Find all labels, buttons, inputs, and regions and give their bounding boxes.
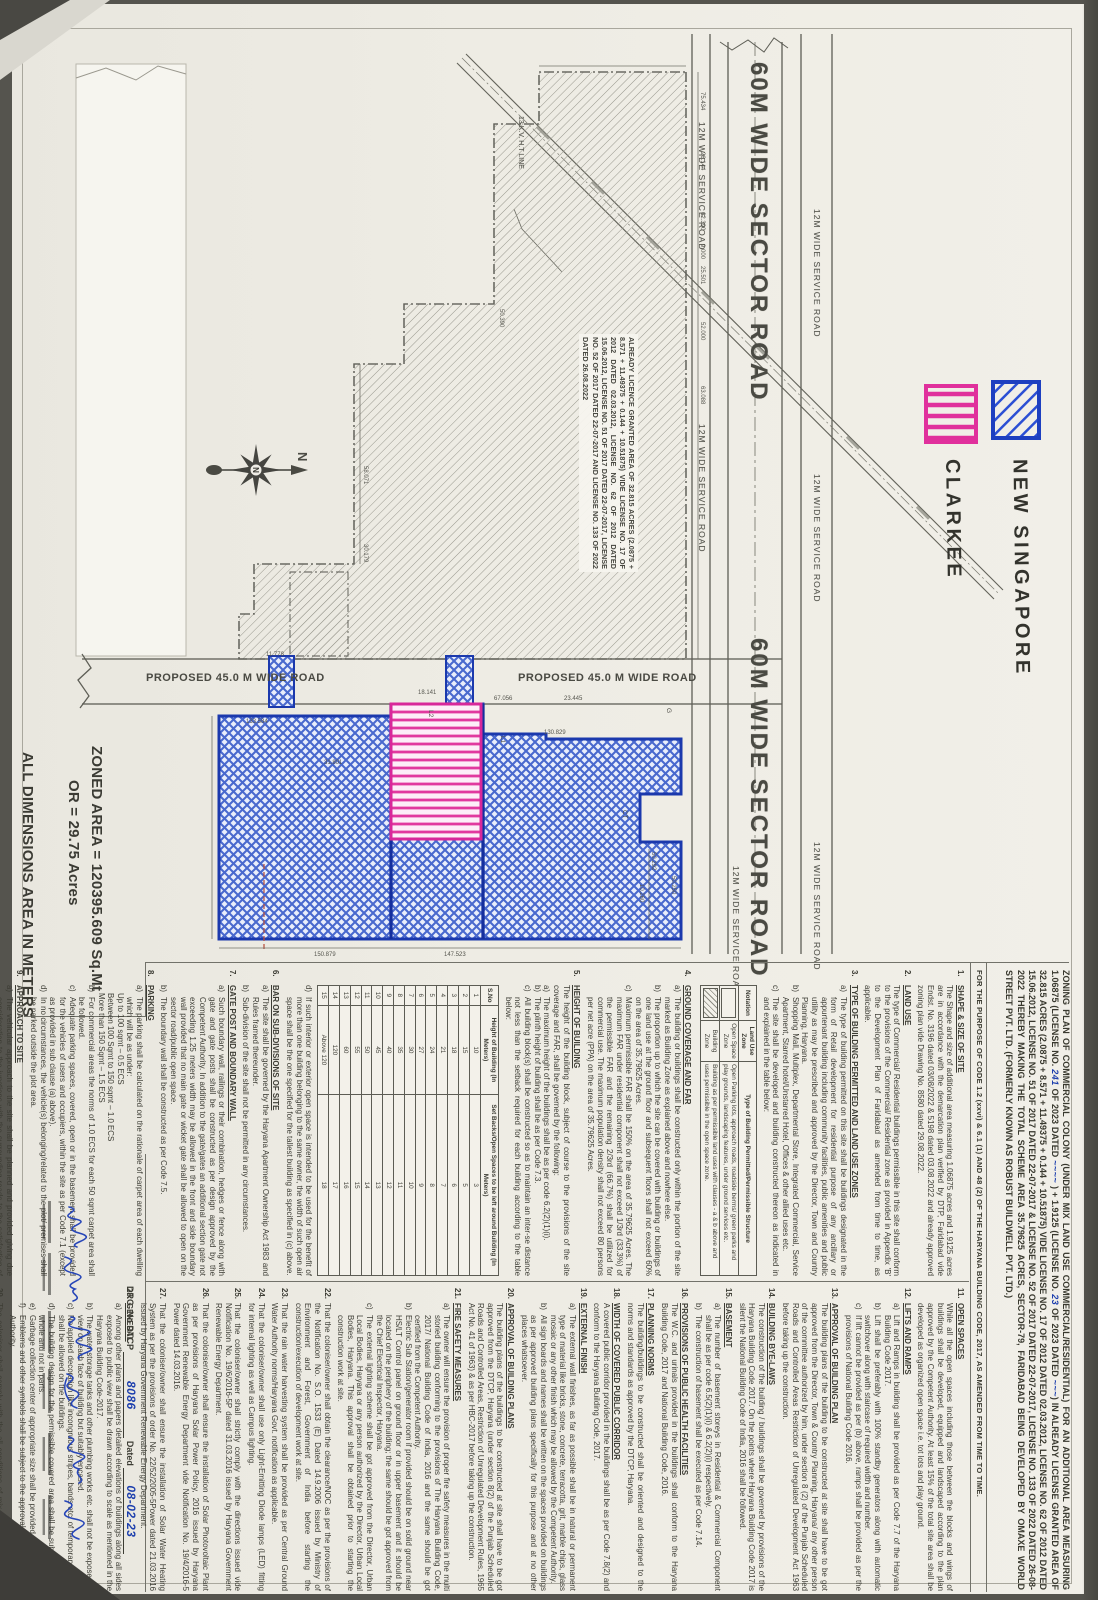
item-text: Sub-division of the site shall not be pe…: [241, 997, 251, 1232]
note-item: a)Such boundary wall, railings or their …: [168, 985, 226, 1276]
note-11: 11.OPEN SPACESWhile all the open spaces …: [916, 1288, 965, 1591]
item-text: All building block(s) shall be construct…: [503, 997, 532, 1276]
note-paragraph: That the coloniser/owner shall strictly …: [214, 1303, 243, 1591]
notes-divider-main: [146, 962, 1069, 963]
note-number: 15.: [693, 1288, 733, 1303]
table-row: Building ZoneBuilding as per permissible…: [701, 986, 720, 1276]
item-key: a): [542, 985, 552, 997]
item-key: d): [284, 985, 313, 997]
note-number: 26.: [171, 1288, 210, 1303]
note-14: 14.BUILDING BYE-LAWSThe construction of …: [737, 1288, 777, 1591]
purpose-line: FOR THE PURPOSE OF CODE 1.2 (xxvi) & 6.1…: [975, 970, 984, 1590]
note-body: BUILDING BYE-LAWSThe construction of the…: [737, 1303, 777, 1591]
note-heading: LIFTS AND RAMPS: [902, 1303, 912, 1591]
proposed-road-label-2: PROPOSED 45.0 M WIDE ROAD: [518, 672, 697, 684]
note-item: a)Lift and Ramps in building shall be pr…: [882, 1303, 901, 1591]
item-text: If such interior or exterior open space …: [284, 997, 313, 1276]
plan-sheet: N 60M WIDE SECTOR ROAD 60M WIDE SECTOR R…: [12, 4, 1084, 1594]
note-12: 12.LIFTS AND RAMPSa)Lift and Ramps in bu…: [843, 1288, 911, 1591]
item-text: The site shall be governed by the Haryan…: [250, 997, 269, 1276]
table-cell: 7: [437, 1095, 448, 1276]
note-17: 17.PLANNING NORMSThe building/buildings …: [626, 1288, 656, 1591]
note-paragraph: The building plans of the building to be…: [780, 1303, 828, 1591]
item-key: b): [241, 985, 251, 997]
table-cell: 12: [383, 1095, 394, 1276]
note-paragraph: That the rain water harvesting system sh…: [270, 1303, 289, 1591]
note-item: a)The maximum height of the buildings sh…: [542, 985, 552, 1276]
note-6: 6.BAR ON SUB-DIVISIONS OF SITEa)The site…: [241, 970, 281, 1276]
table-cell: 15: [318, 986, 329, 1006]
table-cell: 13: [339, 986, 350, 1006]
road-break-symbol: [720, 38, 788, 52]
item-text: The parking shall be calculated on the r…: [125, 997, 144, 1276]
plot-label-G: G: [665, 708, 672, 713]
table-row: 1412017: [329, 986, 340, 1276]
note-item: b)Shopping Mall, Multiplex, Departmental…: [780, 985, 799, 1276]
dim-label: 26.144: [699, 152, 705, 170]
note-heading: BASEMENT: [723, 1303, 733, 1591]
note-paragraph: The building plans of the buildings to b…: [466, 1303, 505, 1591]
item-key: a): [250, 985, 269, 997]
note-paragraph: That the coloniser/owner shall ensure th…: [138, 1303, 167, 1591]
note-20: 20.APPROVAL OF BUILDING PLANSThe buildin…: [466, 1288, 515, 1591]
blank-paper-band: [76, 64, 186, 656]
dim-label: 10.260: [638, 884, 644, 902]
setback-table: S.NoHeight of Building (In Meters)Set Ba…: [317, 985, 499, 1276]
table-cell: 30: [404, 1005, 415, 1095]
dim-label: 58.071: [362, 466, 368, 484]
table-row: 3186: [448, 986, 459, 1276]
note-number: 4.: [585, 970, 692, 985]
note-heading: FIRE SAFETY MEASURES: [452, 1303, 462, 1591]
plot-label-L1: L1: [499, 736, 506, 743]
svg-text:N: N: [251, 467, 260, 473]
note-paragraph: A covered public corridor provided in th…: [592, 1303, 611, 1591]
note-body: BAR ON SUB-DIVISIONS OF SITEa)The site s…: [241, 985, 281, 1276]
proposed-road-label-1: PROPOSED 45.0 M WIDE ROAD: [146, 672, 325, 684]
table-cell: 10: [372, 986, 383, 1006]
note-paragraph: While all the open spaces including thos…: [916, 1303, 955, 1591]
photo-edge-right: [1082, 0, 1098, 1600]
notation-cell: [701, 986, 720, 1021]
dim-label: 52.000: [699, 322, 705, 340]
note-7: 7.GATE POST AND BOUNDARY WALLa)Such boun…: [159, 970, 237, 1276]
note-heading: HEIGHT OF BUILDING: [572, 985, 582, 1276]
note-2: 2.LAND USEThe type of Commercial/ Reside…: [863, 970, 912, 1276]
note-item: a)The site shall be governed by the Hary…: [250, 985, 269, 1276]
licensed-area-text: ALREADY LICENCE GRANTED AREA OF 32.815 A…: [579, 334, 638, 572]
zone-road-crossing-1: [446, 656, 473, 707]
drg-number-handwritten: 8086: [123, 1352, 138, 1438]
note-1: 1.SHAPE & SIZE OF SITEThe Shape and size…: [916, 970, 965, 1276]
dim-label: 25.501: [699, 266, 705, 284]
item-text: The construction of basement shall be ex…: [693, 1315, 703, 1547]
table-cell: 16: [339, 1095, 350, 1276]
item-key: a): [882, 1303, 901, 1315]
table-cell: 35: [394, 1005, 405, 1095]
item-text: The site shall be developed and building…: [761, 997, 780, 1276]
note-item: a)The building or buildings shall be con…: [662, 985, 681, 1276]
service-road-label-2: 12M WIDE SERVICE ROAD: [812, 474, 822, 603]
dim-label: 18.141: [418, 690, 436, 696]
item-key: b): [780, 985, 799, 997]
note-number: 16.: [659, 1288, 689, 1303]
item-key: b): [633, 985, 662, 997]
note-body: EXTERNAL FINISHa)The external wall finis…: [519, 1303, 587, 1591]
table-row: 2155: [458, 986, 469, 1276]
notes-column-right: 11.OPEN SPACESWhile all the open spaces …: [0, 1288, 965, 1591]
note-number: 17.: [626, 1288, 656, 1303]
handwritten-entry: 241: [1050, 1069, 1060, 1086]
item-text: If lift cannot be provided as per (b) ab…: [843, 1315, 862, 1591]
item-key: a): [800, 985, 848, 997]
purpose-rule: [970, 962, 971, 1592]
note-item: b)Lift shall be preferably with 100% sta…: [863, 1303, 882, 1591]
table-cell: 17: [329, 1095, 340, 1276]
note-number: 3.: [696, 970, 858, 985]
note-body: SHAPE & SIZE OF SITEThe Shape and size o…: [916, 985, 965, 1276]
note-body: PROVISIONS OF PUBLIC HEALTH FACILITIESTh…: [659, 1303, 689, 1591]
note-heading: PROVISIONS OF PUBLIC HEALTH FACILITIES: [680, 1303, 690, 1591]
note-body: PLANNING NORMSThe building/buildings to …: [626, 1303, 656, 1591]
note-number: 19.: [519, 1288, 587, 1303]
zoned-area-line2: OR = 29.75 Acres: [62, 746, 85, 991]
note-item: b)Sub-division of the site shall not be …: [241, 985, 251, 1276]
note-body: That the coloniser/owner shall strictly …: [214, 1303, 243, 1591]
note-number: 20.: [466, 1288, 515, 1303]
table-cell: 12: [350, 986, 361, 1006]
note-heading: PARKING: [145, 985, 155, 1276]
note-heading: SHAPE & SIZE OF SITE: [955, 985, 965, 1276]
table-cell: 15: [458, 1005, 469, 1095]
note-heading: EXTERNAL FINISH: [578, 1303, 588, 1591]
item-key: b): [519, 1303, 548, 1315]
note-number: 7.: [159, 970, 237, 985]
item-key: a): [662, 985, 681, 997]
note-item: b)All sign boards and names shall be wri…: [519, 1303, 548, 1591]
note-heading: OPEN SPACES: [955, 1303, 965, 1591]
table-cell: 40: [383, 1005, 394, 1095]
note-number: 6.: [241, 970, 281, 985]
zone-cell: Open Space Zone: [719, 1021, 738, 1062]
dim-label: 9.000: [699, 244, 705, 259]
note-item: a)The type of building permitted on this…: [800, 985, 848, 1276]
table-row: 4217: [437, 986, 448, 1276]
table-cell: 8: [426, 1095, 437, 1276]
note-paragraph: That the coloniser/owner shall ensure th…: [171, 1303, 210, 1591]
item-key: a): [548, 1303, 577, 1315]
table-cell: 14: [361, 1095, 372, 1276]
note-23: 23.That the rain water harvesting system…: [270, 1288, 289, 1591]
note-number: 5.: [284, 970, 581, 985]
table-row: 94012: [383, 986, 394, 1276]
item-key: a): [0, 985, 14, 997]
item-text: All sign boards and names shall be writt…: [519, 1315, 548, 1591]
table-row: 125515: [350, 986, 361, 1276]
note-item: b)Electric Sub Station/generator room if…: [374, 1303, 413, 1591]
note-heading: GATE POST AND BOUNDARY WALL: [227, 985, 237, 1276]
dim-label: 31.801: [324, 760, 342, 766]
note-number: 13.: [780, 1288, 839, 1303]
note-16: 16.PROVISIONS OF PUBLIC HEALTH FACILITIE…: [659, 1288, 689, 1591]
desc-cell: Building as per permissible land uses wi…: [701, 1062, 720, 1276]
note-number: 27.: [138, 1288, 167, 1303]
item-text: Lift and Ramps in building shall be prov…: [882, 1315, 901, 1591]
table-header: Notation: [738, 986, 757, 1021]
table-cell: 11: [394, 1095, 405, 1276]
dim-label: 133.584: [246, 719, 268, 725]
note-item: d)If such interior or exterior open spac…: [284, 985, 313, 1276]
dim-label: 130.829: [544, 730, 566, 736]
note-heading: BAR ON SUB-DIVISIONS OF SITE: [271, 985, 281, 1276]
table-row: 5248: [426, 986, 437, 1276]
note-number: 12.: [843, 1288, 911, 1303]
note-paragraph: The type of Commercial/ Residential buil…: [863, 985, 902, 1276]
north-compass: N: [206, 444, 308, 496]
note-number: 24.: [246, 1288, 265, 1303]
item-key: a): [168, 985, 226, 997]
zoned-area-line1: ZONED AREA = 120395.609 Sq.Mt: [85, 746, 108, 991]
licensed-area-small-plot: [290, 572, 348, 656]
note-item: b)The proportion up to which the site ca…: [633, 985, 662, 1276]
item-text: Lift shall be preferably with 100% stand…: [863, 1315, 882, 1591]
note-21: 21.FIRE SAFETY MEASURESa)The owner will …: [336, 1288, 462, 1591]
dim-label: 75.434: [699, 92, 705, 110]
note-paragraph: The height of the building block, subjec…: [551, 985, 570, 1276]
notes-column-left: 1.SHAPE & SIZE OF SITEThe Shape and size…: [0, 970, 965, 1276]
note-number: 21.: [336, 1288, 462, 1303]
table-row: 15Above 12018: [318, 986, 329, 1276]
item-text: Maximum permissible FAR shall be 150% on…: [585, 997, 633, 1276]
note-4: 4.GROUND COVERAGE AND FARa)The building …: [585, 970, 692, 1276]
plot-label-L2: L2: [427, 710, 434, 717]
table-row: 6279: [415, 986, 426, 1276]
table-cell: Above 120: [318, 1005, 329, 1095]
north-label: N: [295, 452, 310, 461]
service-road-label-1: 12M WIDE SERVICE ROAD: [812, 209, 822, 338]
table-cell: 45: [372, 1005, 383, 1095]
note-27: 27.That the coloniser/owner shall ensure…: [138, 1288, 167, 1591]
subline: Up to 100 sqmt – 0.5 ECS: [115, 993, 125, 1276]
open-swatch: [721, 988, 736, 1018]
generated: NotationLand Use ZoneType of Building Pe…: [738, 986, 757, 1276]
ht-line-label: 13 K.V. H.T LINE: [517, 116, 524, 169]
note-body: GATE POST AND BOUNDARY WALLa)Such bounda…: [159, 985, 237, 1276]
table-cell: 5: [426, 986, 437, 1006]
hatch-swatch: [703, 988, 718, 1018]
note-paragraph: That the coloniser/owner shall use only …: [246, 1303, 265, 1591]
item-key: b): [77, 985, 96, 997]
table-cell: 21: [437, 1005, 448, 1095]
sector-road-label-1: 60M WIDE SECTOR ROAD: [744, 62, 772, 402]
title-text: ) + 1.9125 (LICENSE NO.: [1050, 1183, 1060, 1294]
note-heading: WIDTH OF COVERED PUBLIC CORRIDOR: [612, 1303, 622, 1591]
table-cell: 11: [361, 986, 372, 1006]
table-cell: 6: [415, 986, 426, 1006]
table-header: Set Backs/Open Spaces to be left around …: [480, 1095, 499, 1276]
item-key: c): [843, 1303, 862, 1315]
note-26: 26.That the coloniser/owner shall ensure…: [171, 1288, 210, 1591]
note-body: TYPE OF BUILDING PERMITTED AND LAND USE …: [696, 985, 858, 1276]
table-cell: 7: [404, 986, 415, 1006]
note-5: 5.HEIGHT OF BUILDINGThe height of the bu…: [284, 970, 581, 1276]
item-text: The proportion up to which the site can …: [633, 997, 662, 1276]
item-key: a): [703, 1303, 722, 1315]
note-body: OPEN SPACESWhile all the open spaces inc…: [916, 1303, 965, 1591]
desc-cell: Open Parking lots, approach roads, roads…: [719, 1062, 738, 1276]
item-key: d): [28, 985, 47, 997]
note-body: APPROVAL OF BUILDING PLANThe building pl…: [780, 1303, 839, 1591]
item-key: b): [693, 1303, 703, 1315]
dim-label: 150.879: [314, 952, 336, 958]
table-row: 1103: [469, 986, 480, 1276]
note-body: WIDTH OF COVERED PUBLIC CORRIDORA covere…: [592, 1303, 622, 1591]
note-number: 23.: [270, 1288, 289, 1303]
table-row: 104513: [372, 986, 383, 1276]
zoned-area-note: ZONED AREA = 120395.609 Sq.Mt OR = 29.75…: [62, 746, 109, 991]
note-paragraph: The construction of the building / build…: [737, 1303, 766, 1591]
dim-label: 50.292: [650, 852, 656, 870]
drawing-number-line: DRG. No DTCP 8086 Dated 08-02-23: [123, 1286, 138, 1554]
plot-label-CT: CT: [621, 810, 628, 819]
handwritten-entry: 23: [1050, 1294, 1060, 1305]
item-text: Electric Sub Station/generator room if p…: [374, 1315, 413, 1591]
note-body: APPROVAL OF BUILDING PLANSThe building p…: [466, 1303, 515, 1591]
legend-label-new-singapore: NEW SINGAPORE: [1007, 459, 1033, 677]
item-text: Such boundary wall, railings or their co…: [168, 997, 226, 1276]
dim-label: 50.250: [670, 876, 676, 894]
title-text: OF 2023 DATED: [1050, 1305, 1060, 1379]
note-body: That the coloniser/owner shall use only …: [246, 1303, 265, 1591]
table-row: Open Space ZoneOpen Parking lots, approa…: [719, 986, 738, 1276]
dim-label: 67.056: [494, 696, 512, 702]
notation-cell: [719, 986, 738, 1021]
item-key: a): [413, 1303, 452, 1315]
note-heading: APPROVAL OF BUILDING PLAN: [830, 1303, 840, 1591]
item-text: The building or buildings shall be const…: [662, 997, 681, 1276]
dated-label: Dated: [125, 1441, 135, 1466]
note-item: a)The owner will ensure the provision of…: [413, 1303, 452, 1591]
dim-label: 23.445: [564, 696, 582, 702]
table-cell: 5: [458, 1095, 469, 1276]
table-cell: 15: [350, 1095, 361, 1276]
note-item: a)The parking shall be calculated on the…: [125, 985, 144, 1276]
table-cell: 1: [469, 986, 480, 1006]
note-body: That the rain water harvesting system sh…: [270, 1303, 289, 1591]
note-13: 13.APPROVAL OF BUILDING PLANThe building…: [780, 1288, 839, 1591]
item-text: The type of building permitted on this s…: [800, 997, 848, 1276]
note-item: c)The external lighting scheme shall be …: [336, 1303, 375, 1591]
pink-zone-rect: [391, 704, 481, 839]
note-body: GROUND COVERAGE AND FARa)The building or…: [585, 985, 692, 1276]
note-item: b)The plinth height of building shall be…: [532, 985, 542, 1276]
note-heading: PLANNING NORMS: [646, 1303, 656, 1591]
note-22: 22.That the coloniser/owner shall obtain…: [293, 1288, 332, 1591]
table-cell: 3: [469, 1095, 480, 1276]
table-cell: 50: [361, 1005, 372, 1095]
note-number: 14.: [737, 1288, 777, 1303]
note-body: BASEMENTa)The number of basement storeys…: [693, 1303, 733, 1591]
note-body: LAND USEThe type of Commercial/ Resident…: [863, 985, 912, 1276]
item-key: c): [503, 985, 532, 997]
plan-title-paragraph: ZONING PLAN OF COMMERCIAL COLONY (UNDER …: [1003, 970, 1071, 1590]
scanned-zoning-plan-photo: { "legend": { "items": [ {"label": "NEW …: [0, 0, 1098, 1600]
note-body: That the coloniser/owner shall ensure th…: [171, 1303, 210, 1591]
note-body: HEIGHT OF BUILDINGThe height of the buil…: [284, 985, 581, 1276]
item-key: b): [159, 985, 169, 997]
note-item: a)The number of basement storeys in Resi…: [703, 1303, 722, 1591]
note-body: LIFTS AND RAMPSa)Lift and Ramps in build…: [843, 1303, 911, 1591]
legend-swatch-clarkee: [926, 386, 976, 442]
handwritten-entry: ~~~: [1050, 1380, 1060, 1397]
table-cell: 8: [394, 986, 405, 1006]
dim-label: 50.390: [498, 309, 504, 327]
note-number: 25.: [214, 1288, 243, 1303]
note-item: b)The construction of basement shall be …: [693, 1303, 703, 1591]
item-key: a): [125, 985, 144, 997]
table-cell: 4: [437, 986, 448, 1006]
note-paragraph: The building/buildings to be constructed…: [626, 1303, 645, 1591]
note-24: 24.That the coloniser/owner shall use on…: [246, 1288, 265, 1591]
note-number: 1.: [916, 970, 965, 985]
item-text: The external lighting scheme shall be go…: [336, 1315, 375, 1591]
table-cell: 6: [448, 1095, 459, 1276]
table-cell: 60: [339, 1005, 350, 1095]
note-25: 25.That the coloniser/owner shall strict…: [214, 1288, 243, 1591]
legend-label-clarkee: CLARKEE: [940, 459, 965, 580]
header-rule: [986, 962, 987, 1592]
table-row: 115014: [361, 986, 372, 1276]
item-text: The plinth height of building shall be a…: [532, 997, 542, 1183]
table-cell: 27: [415, 1005, 426, 1095]
title-text: OF 2023 DATED: [1050, 1086, 1060, 1160]
note-paragraph: That the coloniser/owner shall obtain th…: [293, 1303, 332, 1591]
note-number: 11.: [916, 1288, 965, 1303]
item-text: The owner will ensure the provision of p…: [413, 1315, 452, 1591]
item-key: c): [48, 985, 77, 997]
table-header: S.No: [480, 986, 499, 1006]
item-text: The maximum height of the buildings shal…: [542, 997, 552, 1240]
service-road-label-4: 12M WIDE SERVICE ROAD: [697, 122, 707, 251]
note-item: c)Maximum permissible FAR shall be 150% …: [585, 985, 633, 1276]
notes-column-divider: [146, 1281, 969, 1282]
dim-label: 62.390: [699, 212, 705, 230]
drg-label: DRG. No DTCP: [125, 1286, 135, 1350]
item-key: c): [761, 985, 780, 997]
note-number: 2.: [863, 970, 912, 985]
note-heading: TYPE OF BUILDING PERMITTED AND LAND USE …: [849, 985, 859, 1276]
table-row: 73010: [404, 986, 415, 1276]
drg-date-handwritten: 08-02-23: [123, 1468, 138, 1554]
note-item: c)All building block(s) shall be constru…: [503, 985, 532, 1276]
table-cell: 9: [415, 1095, 426, 1276]
item-text: The number of basement storeys in Reside…: [703, 1315, 722, 1591]
table-cell: 14: [329, 986, 340, 1006]
table-cell: 18: [318, 1095, 329, 1276]
note-number: 8.: [28, 970, 154, 985]
note-body: That the coloniser/owner shall ensure th…: [138, 1303, 167, 1591]
dim-label: 11.778: [266, 652, 284, 658]
dim-label: 147.523: [444, 952, 466, 958]
generated: S.NoHeight of Building (In Meters)Set Ba…: [480, 986, 499, 1276]
service-road-label-5: 12M WIDE SERVICE ROAD: [697, 424, 707, 553]
item-key: b): [374, 1303, 413, 1315]
table-row: 136016: [339, 986, 350, 1276]
note-3: 3.TYPE OF BUILDING PERMITTED AND LAND US…: [696, 970, 858, 1276]
item-text: The boundary wall shall be constructed a…: [159, 997, 169, 1194]
dim-label: 30.179: [362, 544, 368, 562]
handwritten-entry: ~~~~: [1050, 1160, 1060, 1183]
